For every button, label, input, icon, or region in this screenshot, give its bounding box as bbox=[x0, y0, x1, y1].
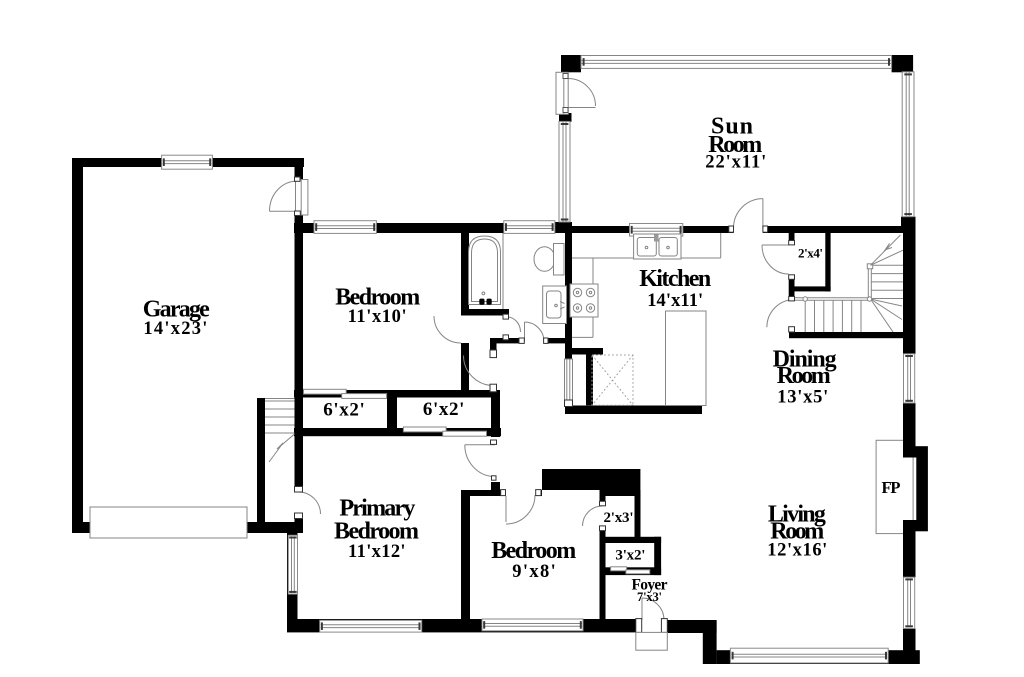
svg-text:6'x2': 6'x2' bbox=[323, 400, 365, 421]
svg-text:11'x12': 11'x12' bbox=[348, 542, 406, 562]
svg-text:9'x8': 9'x8' bbox=[512, 562, 556, 582]
svg-text:2'x3': 2'x3' bbox=[604, 510, 634, 526]
svg-text:FP: FP bbox=[882, 478, 901, 497]
svg-text:14'x23': 14'x23' bbox=[143, 319, 207, 339]
svg-text:Kitchen: Kitchen bbox=[639, 266, 711, 292]
svg-text:Bedroom: Bedroom bbox=[491, 538, 576, 564]
svg-text:Primary: Primary bbox=[339, 495, 415, 521]
svg-text:6'x2': 6'x2' bbox=[423, 399, 465, 420]
svg-text:2'x4': 2'x4' bbox=[798, 245, 823, 260]
svg-text:13'x5': 13'x5' bbox=[777, 388, 828, 408]
svg-text:14'x11': 14'x11' bbox=[647, 291, 703, 311]
svg-text:12'x16': 12'x16' bbox=[767, 540, 827, 560]
svg-text:7'x3': 7'x3' bbox=[637, 590, 662, 604]
svg-text:Room: Room bbox=[777, 363, 831, 389]
svg-text:22'x11': 22'x11' bbox=[705, 153, 766, 173]
svg-text:3'x2': 3'x2' bbox=[615, 547, 645, 563]
svg-text:11'x10': 11'x10' bbox=[348, 307, 407, 327]
svg-text:Bedroom: Bedroom bbox=[334, 519, 419, 545]
